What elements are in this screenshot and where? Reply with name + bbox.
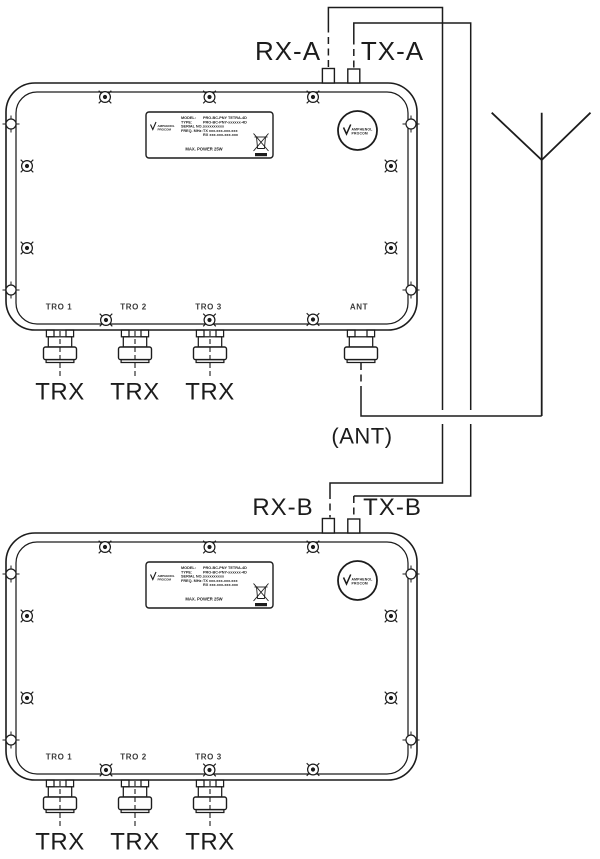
bottom-combiner-unit: RX-B TX-B bbox=[3, 494, 422, 856]
ant-connector bbox=[345, 330, 378, 363]
top-combiner-unit: ANT RX-A TX-A bbox=[3, 36, 425, 406]
antenna-feed-label: (ANT) bbox=[331, 424, 392, 449]
combiner-wiring-diagram: AMPHENOL PROCOM MODEL: PRO-BC-PNY TETRA-… bbox=[0, 0, 600, 859]
antenna-icon bbox=[492, 113, 591, 416]
rx-b-label: RX-B bbox=[252, 494, 313, 521]
tx-b-label: TX-B bbox=[363, 494, 422, 521]
tx-a-label: TX-A bbox=[361, 36, 424, 66]
ant-to-antenna-wire bbox=[361, 363, 542, 416]
diagram-canvas: AMPHENOL PROCOM MODEL: PRO-BC-PNY TETRA-… bbox=[0, 0, 600, 859]
ant-port-label: ANT bbox=[350, 303, 368, 312]
rx-a-label: RX-A bbox=[255, 36, 321, 66]
